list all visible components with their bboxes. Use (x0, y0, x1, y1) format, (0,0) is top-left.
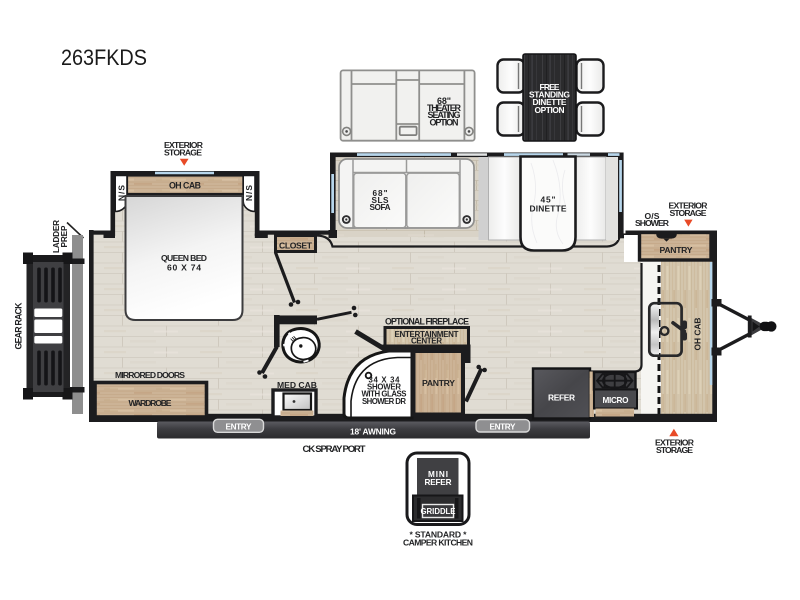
svg-text:DINETTE: DINETTE (530, 204, 567, 214)
svg-text:SHOWER: SHOWER (635, 218, 670, 228)
svg-text:ENTRY: ENTRY (226, 423, 253, 432)
svg-text:60 X 74: 60 X 74 (167, 263, 201, 273)
svg-text:MIRRORED DOORS: MIRRORED DOORS (115, 370, 185, 380)
svg-text:SHOWER DR: SHOWER DR (362, 397, 406, 406)
svg-text:CLOSET: CLOSET (279, 241, 313, 251)
svg-text:CK SPRAY PORT: CK SPRAY PORT (303, 444, 366, 455)
svg-text:18' AWNING: 18' AWNING (350, 427, 396, 437)
svg-text:GEAR RACK: GEAR RACK (14, 302, 24, 350)
svg-text:OH CAB: OH CAB (693, 318, 703, 351)
svg-text:MICRO: MICRO (603, 396, 630, 405)
svg-text:STORAGE: STORAGE (670, 208, 707, 218)
svg-text:OPTION: OPTION (430, 117, 459, 127)
svg-text:WARDROBE: WARDROBE (129, 398, 172, 408)
svg-text:GRIDDLE: GRIDDLE (421, 507, 456, 516)
svg-text:OH CAB: OH CAB (169, 181, 201, 191)
svg-text:STORAGE: STORAGE (656, 445, 693, 455)
svg-text:N/S: N/S (244, 185, 254, 201)
svg-text:263FKDS: 263FKDS (61, 45, 147, 70)
svg-text:STORAGE: STORAGE (164, 148, 202, 158)
svg-text:PANTRY: PANTRY (422, 378, 455, 388)
svg-text:REFER: REFER (425, 478, 452, 487)
svg-text:REFER: REFER (548, 393, 575, 403)
svg-text:OPTIONAL FIREPLACE: OPTIONAL FIREPLACE (385, 317, 469, 327)
svg-text:PANTRY: PANTRY (660, 245, 693, 255)
svg-text:SOFA: SOFA (370, 203, 391, 212)
svg-text:OPTION: OPTION (535, 105, 565, 115)
svg-text:CAMPER KITCHEN: CAMPER KITCHEN (403, 538, 473, 548)
svg-text:PREP: PREP (60, 225, 69, 248)
svg-text:ENTRY: ENTRY (490, 423, 517, 432)
svg-text:QUEEN BED: QUEEN BED (161, 253, 207, 263)
svg-text:CENTER: CENTER (411, 337, 442, 346)
